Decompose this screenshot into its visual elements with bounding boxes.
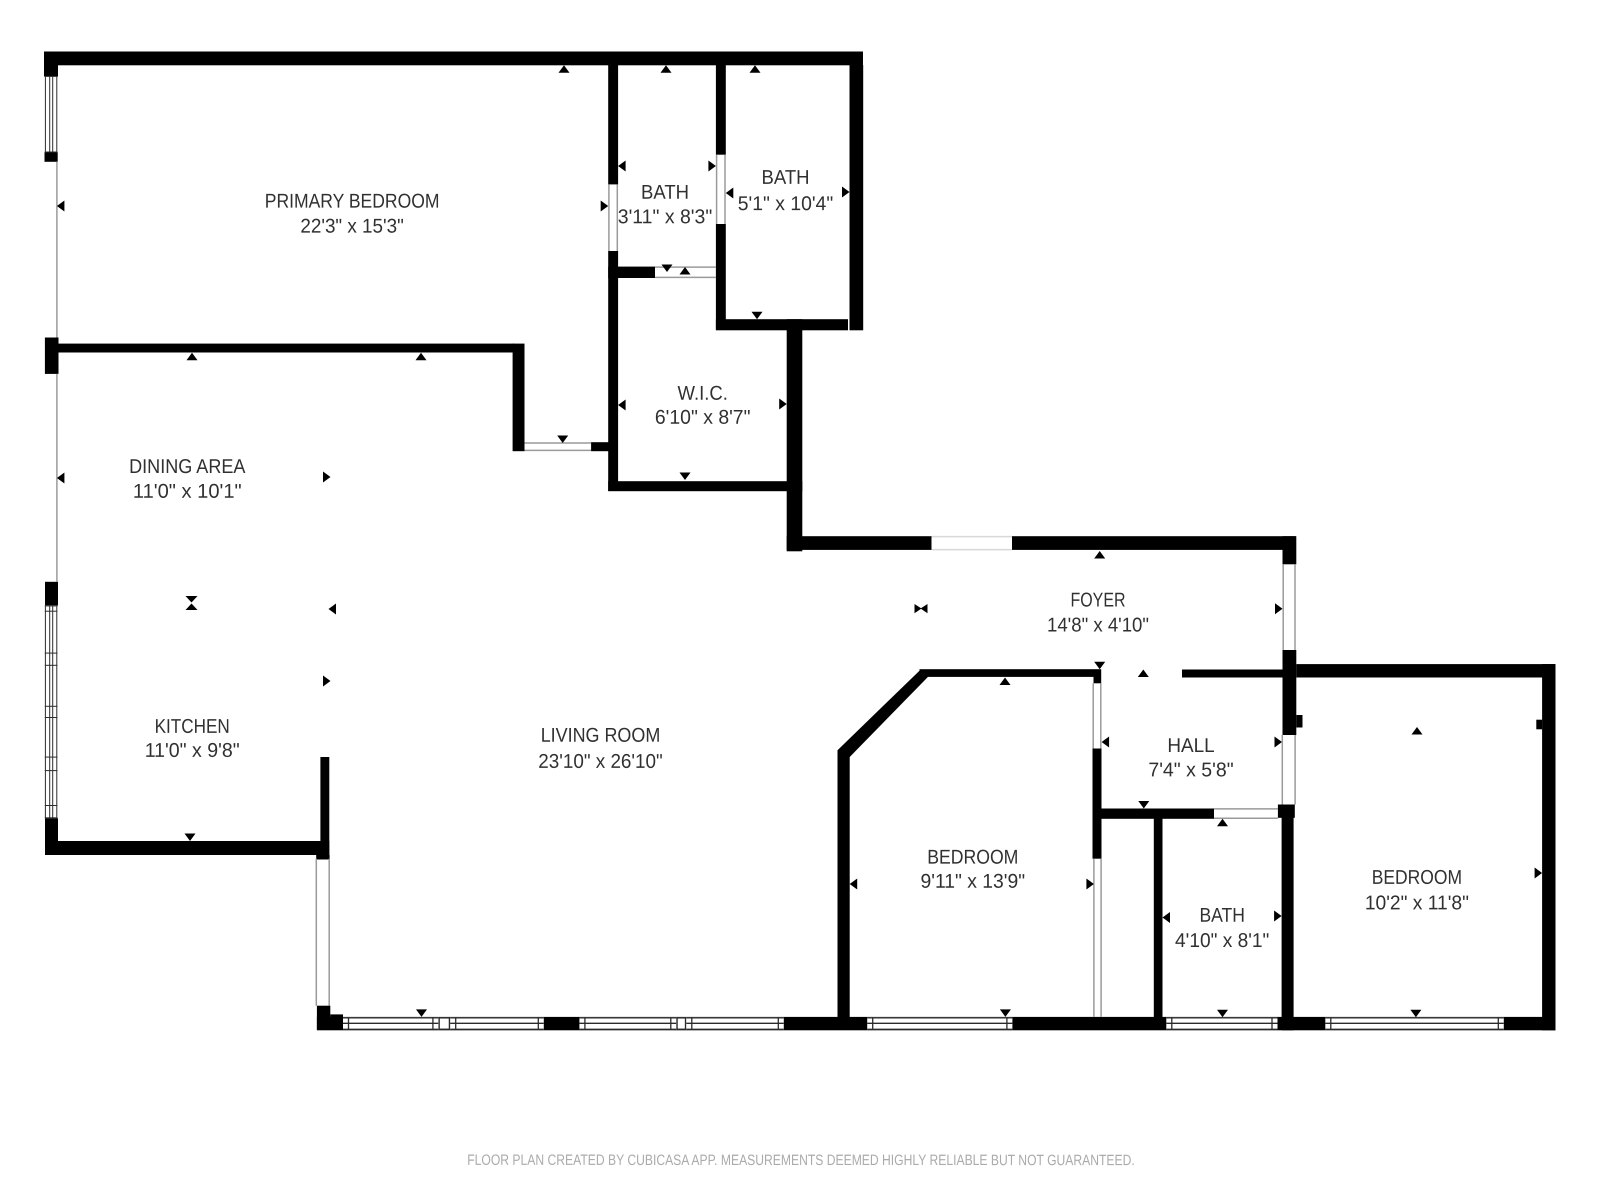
svg-text:W.I.C.: W.I.C. (677, 383, 727, 405)
svg-text:23'10" x 26'10": 23'10" x 26'10" (538, 751, 662, 773)
svg-text:LIVING ROOM: LIVING ROOM (541, 725, 661, 747)
svg-text:22'3" x 15'3": 22'3" x 15'3" (300, 216, 404, 238)
svg-text:BEDROOM: BEDROOM (1372, 867, 1462, 889)
svg-text:FLOOR PLAN CREATED BY CUBICASA: FLOOR PLAN CREATED BY CUBICASA APP. MEAS… (467, 1152, 1135, 1169)
svg-text:9'11" x 13'9": 9'11" x 13'9" (920, 871, 1025, 893)
svg-text:10'2" x 11'8": 10'2" x 11'8" (1365, 892, 1469, 914)
svg-text:7'4" x 5'8": 7'4" x 5'8" (1148, 759, 1233, 781)
svg-text:4'10" x 8'1": 4'10" x 8'1" (1175, 930, 1269, 952)
svg-text:HALL: HALL (1167, 735, 1214, 757)
svg-text:3'11" x 8'3": 3'11" x 8'3" (618, 206, 713, 228)
svg-text:11'0" x 9'8": 11'0" x 9'8" (145, 740, 240, 762)
svg-text:BATH: BATH (1199, 905, 1245, 927)
svg-text:BATH: BATH (641, 182, 689, 204)
svg-text:11'0" x 10'1": 11'0" x 10'1" (133, 481, 242, 503)
svg-text:DINING AREA: DINING AREA (129, 456, 246, 478)
svg-text:FOYER: FOYER (1070, 589, 1125, 611)
svg-text:PRIMARY BEDROOM: PRIMARY BEDROOM (265, 191, 440, 213)
svg-text:BEDROOM: BEDROOM (927, 847, 1018, 869)
svg-text:KITCHEN: KITCHEN (155, 716, 230, 738)
svg-text:5'1" x 10'4": 5'1" x 10'4" (738, 193, 833, 215)
svg-text:14'8" x 4'10": 14'8" x 4'10" (1047, 614, 1149, 636)
svg-text:BATH: BATH (761, 167, 809, 189)
svg-text:6'10" x 8'7": 6'10" x 8'7" (655, 407, 751, 429)
